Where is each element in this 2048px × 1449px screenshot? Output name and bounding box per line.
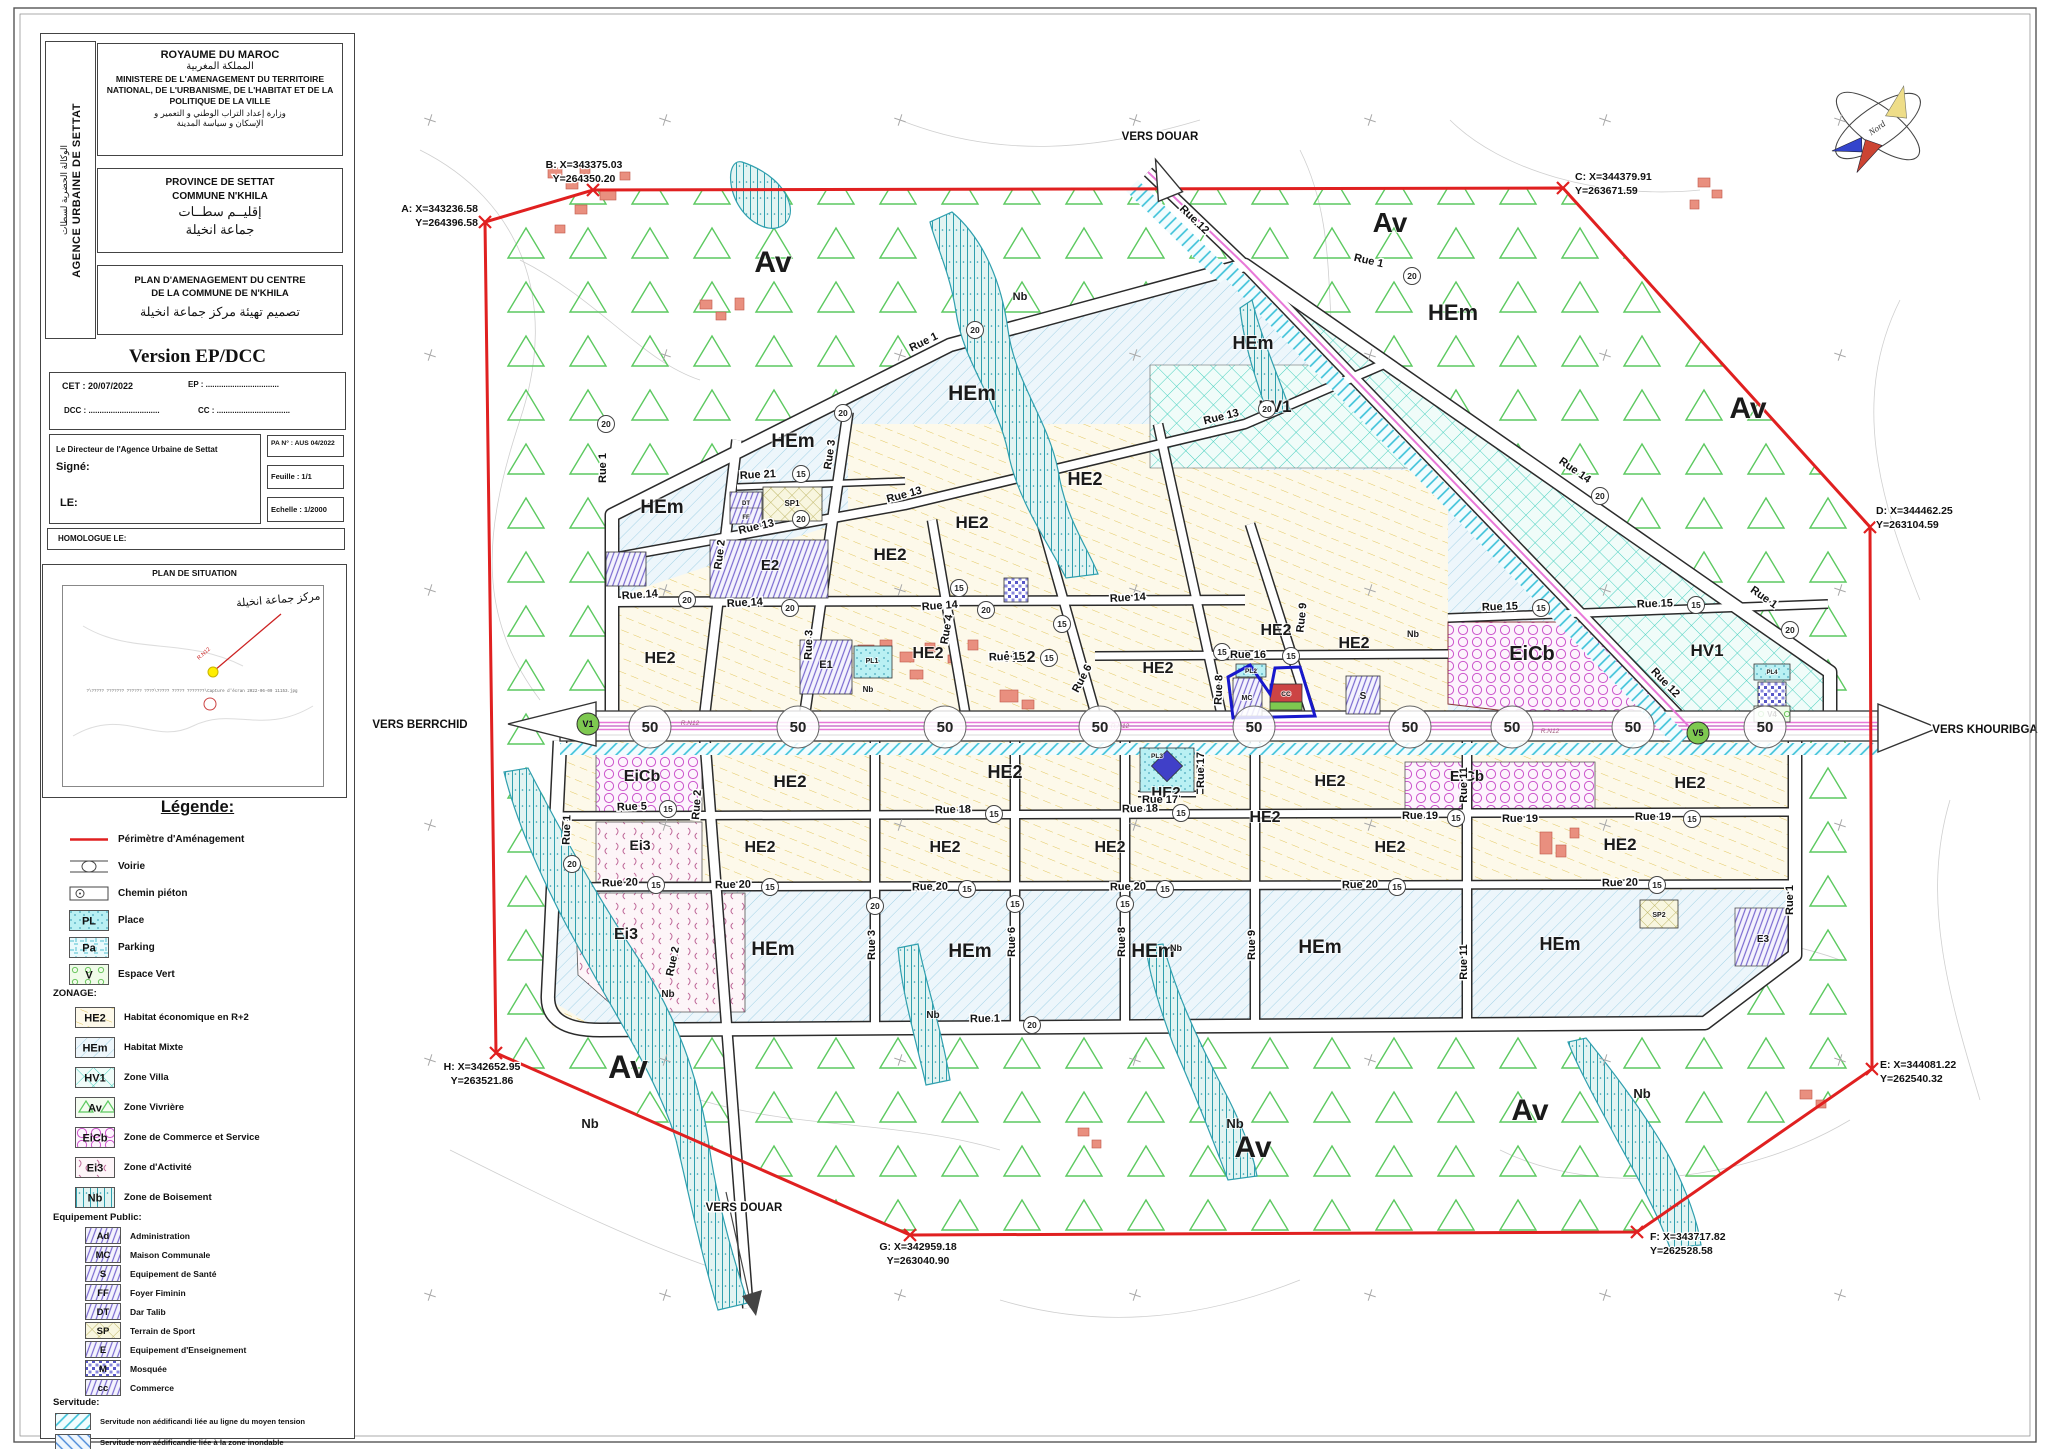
zone-label-hem: HEm bbox=[1539, 934, 1580, 954]
legend-item-E[interactable]: EEquipement d'Enseignement bbox=[53, 1340, 349, 1359]
svg-text:50: 50 bbox=[1757, 719, 1774, 736]
pa-number-box: PA N° : AUS 04/2022 bbox=[267, 435, 344, 457]
svg-text:20: 20 bbox=[1027, 1020, 1037, 1030]
street-label: Rue 15 bbox=[989, 650, 1025, 663]
legend-label: Equipement d'Enseignement bbox=[130, 1345, 246, 1355]
direction-label: VERS DOUAR bbox=[1122, 131, 1199, 143]
corner-coords-G: G: X=342959.18 bbox=[879, 1241, 957, 1253]
svg-text:DT: DT bbox=[97, 1307, 110, 1318]
corner-coords-B: Y=264350.20 bbox=[553, 173, 616, 185]
corner-coords-E: Y=262540.32 bbox=[1880, 1073, 1943, 1085]
zone-label-ff: FF bbox=[742, 515, 750, 521]
servitude-band-road bbox=[560, 743, 1878, 755]
zone-label-he2: HE2 bbox=[1249, 809, 1280, 826]
zone-label-he2: HE2 bbox=[1603, 835, 1636, 854]
legend-item-HV1[interactable]: HV1Zone Villa bbox=[53, 1062, 349, 1092]
svg-text:HEm: HEm bbox=[82, 1042, 107, 1054]
legend-swatch-equip: S bbox=[85, 1265, 121, 1282]
ministry-title: MINISTERE DE L'AMENAGEMENT DU TERRITOIRE… bbox=[98, 72, 342, 108]
legend-item-Ei3[interactable]: Ei3Zone d'Activité bbox=[53, 1152, 349, 1182]
street-label: Rue 19 bbox=[1502, 813, 1538, 825]
zone-label-pl4: PL4 bbox=[1766, 670, 1778, 676]
zone-label-nb: Nb bbox=[926, 1010, 939, 1021]
zone-label-dt: DT bbox=[742, 501, 750, 507]
province-title: PROVINCE DE SETTAT bbox=[98, 177, 342, 188]
legend-swatch-equip: Ad bbox=[85, 1227, 121, 1244]
zone-label-pl3: PL3 bbox=[1151, 753, 1163, 760]
svg-text:50: 50 bbox=[642, 719, 659, 736]
legend-item-Nb[interactable]: NbZone de Boisement bbox=[53, 1182, 349, 1212]
legend-item-FF[interactable]: FFFoyer Fiminin bbox=[53, 1283, 349, 1302]
svg-text:15: 15 bbox=[765, 882, 775, 892]
legend-item-Av[interactable]: AvZone Vivrière bbox=[53, 1092, 349, 1122]
zone-label-hem: HEm bbox=[1298, 937, 1341, 958]
legend-label: Servitude non aédificandie liée à la zon… bbox=[100, 1438, 284, 1447]
street-label: Rue 17 bbox=[1195, 752, 1207, 788]
legend-section-header: Equipement Public: bbox=[53, 1212, 349, 1226]
zone-label-he2: HE2 bbox=[912, 645, 943, 662]
svg-text:20: 20 bbox=[1407, 271, 1417, 281]
street-label: Rue 20 bbox=[602, 876, 638, 889]
zone-label-e3: E3 bbox=[1757, 934, 1770, 945]
svg-text:15: 15 bbox=[1652, 880, 1662, 890]
legend-swatch-he2: HE2 bbox=[75, 1007, 115, 1028]
svg-text:S: S bbox=[100, 1269, 106, 1280]
ministry-title-arabic-2: الإسكان و سياسة المدينة bbox=[98, 118, 342, 129]
legend-item-V[interactable]: VEspace Vert bbox=[53, 961, 349, 988]
legend-label: Foyer Fiminin bbox=[130, 1288, 186, 1298]
legend-item-servin[interactable]: Servitude non aédificandie liée à la zon… bbox=[53, 1432, 349, 1449]
legend-swatch-equip: E bbox=[85, 1341, 121, 1358]
corner-coords-F: F: X=343717.82 bbox=[1650, 1231, 1726, 1243]
legend-item-EiCb[interactable]: EiCbZone de Commerce et Service bbox=[53, 1122, 349, 1152]
legend-label: Périmètre d'Aménagement bbox=[118, 834, 244, 845]
zone-label-nb: Nb bbox=[581, 1116, 598, 1131]
svg-text:20: 20 bbox=[970, 325, 980, 335]
legend-swatch-pa: Pa bbox=[69, 937, 109, 958]
legend-item-SP[interactable]: SPTerrain de Sport bbox=[53, 1321, 349, 1340]
zone-label-av: Av bbox=[1234, 1131, 1272, 1164]
scale-box: Echelle : 1/2000 bbox=[267, 497, 344, 522]
zone-label-hem: HEm bbox=[1131, 941, 1174, 962]
street-label: Rue 14 bbox=[727, 596, 765, 610]
svg-text:50: 50 bbox=[790, 719, 807, 736]
direction-label: VERS KHOURIBGA bbox=[1932, 724, 2037, 736]
zone-label-av: Av bbox=[754, 246, 792, 279]
street-label: Rue 8 bbox=[1212, 675, 1225, 705]
zone-label-ei3: Ei3 bbox=[614, 926, 638, 943]
situation-plan-box: PLAN DE SITUATION مركز جماعة انخيلة R.N1… bbox=[42, 564, 347, 798]
svg-text:15: 15 bbox=[663, 804, 673, 814]
legend-label: Parking bbox=[118, 942, 155, 953]
svg-text:50: 50 bbox=[1402, 719, 1419, 736]
legend-label: Mosquée bbox=[130, 1364, 167, 1374]
agency-strip: الوكالة الحضرية لسطات AGENCE URBAINE DE … bbox=[45, 41, 96, 339]
svg-text:15: 15 bbox=[1392, 882, 1402, 892]
corner-coords-A: A: X=343236.58 bbox=[401, 203, 478, 215]
legend-swatch-ei3: Ei3 bbox=[75, 1157, 115, 1178]
zone-label-nb: Nb bbox=[1013, 291, 1028, 303]
street-label: Rue 1 bbox=[560, 815, 573, 845]
legend-label: Zone Villa bbox=[124, 1072, 169, 1083]
street-label: Rue 1 bbox=[597, 453, 609, 483]
zone-label-hem: HEm bbox=[751, 939, 794, 960]
street-label: Rue 1 bbox=[1784, 885, 1796, 915]
legend-item-Pa[interactable]: PaParking bbox=[53, 934, 349, 961]
svg-text:15: 15 bbox=[1120, 899, 1130, 909]
svg-text:20: 20 bbox=[870, 901, 880, 911]
corner-coords-H: H: X=342652.95 bbox=[444, 1061, 521, 1073]
svg-text:EiCb: EiCb bbox=[82, 1132, 107, 1144]
legend-swatch-m: M bbox=[85, 1360, 121, 1377]
legend-item-HE2[interactable]: HE2Habitat économique en R+2 bbox=[53, 1002, 349, 1032]
street-label: Rue 16 bbox=[1230, 649, 1266, 661]
legend-item-servmt[interactable]: Servitude non aédificandi liée au ligne … bbox=[53, 1411, 349, 1432]
corner-coords-B: B: X=343375.03 bbox=[546, 159, 623, 171]
legend-swatch-equip: FF bbox=[85, 1284, 121, 1301]
plan-title-box: PLAN D'AMENAGEMENT DU CENTRE DE LA COMMU… bbox=[97, 265, 343, 335]
svg-text:PL: PL bbox=[82, 916, 96, 928]
zone-label-hem: HEm bbox=[771, 431, 814, 452]
legend-label: Terrain de Sport bbox=[130, 1326, 195, 1336]
street-label: Rue 14 bbox=[1110, 591, 1148, 605]
svg-text:20: 20 bbox=[567, 859, 577, 869]
zone-label-sp1: SP1 bbox=[784, 499, 800, 508]
situation-center-dot bbox=[208, 667, 218, 677]
street-label: Rue 15 bbox=[1482, 600, 1518, 613]
svg-text:50: 50 bbox=[1246, 719, 1263, 736]
street-label: Rue 3 bbox=[802, 630, 815, 660]
svg-text:15: 15 bbox=[954, 583, 964, 593]
legend-label: Dar Talib bbox=[130, 1307, 166, 1317]
zone-label-he2: HE2 bbox=[1142, 660, 1173, 677]
svg-text:50: 50 bbox=[1625, 719, 1642, 736]
zone-label-hem: HEm bbox=[948, 941, 991, 962]
svg-text:E: E bbox=[100, 1345, 106, 1356]
zone-label-e1: E1 bbox=[819, 659, 832, 671]
legend-swatch-equip: MC bbox=[85, 1246, 121, 1263]
legend-item-MC[interactable]: MCMaison Communale bbox=[53, 1245, 349, 1264]
legend-label: Equipement de Santé bbox=[130, 1269, 216, 1279]
svg-text:15: 15 bbox=[1010, 899, 1020, 909]
svg-text:Nb: Nb bbox=[88, 1192, 103, 1204]
street-label: Rue 19 bbox=[1402, 810, 1438, 822]
director-box: Le Directeur de l'Agence Urbaine de Sett… bbox=[49, 434, 261, 524]
situation-map[interactable]: مركز جماعة انخيلة R.N12 ?\????? ??????? … bbox=[62, 585, 324, 787]
svg-text:15: 15 bbox=[1217, 647, 1227, 657]
svg-text:FF: FF bbox=[97, 1288, 109, 1299]
street-label: Rue 9 bbox=[1246, 930, 1258, 960]
plan-sheet: Nord AvAvAvAvAvAvHEmHEmHEmHEmHEmHEmHEmHE… bbox=[0, 0, 2048, 1449]
zone-label-hem: HEm bbox=[948, 382, 996, 405]
legend-swatch-equip: cc bbox=[85, 1379, 121, 1396]
legend-label: Habitat économique en R+2 bbox=[124, 1012, 249, 1023]
zone-label-av: Av bbox=[608, 1049, 648, 1085]
legend-label: Zone Vivrière bbox=[124, 1102, 184, 1113]
svg-text:15: 15 bbox=[962, 884, 972, 894]
corner-coords-H: Y=263521.86 bbox=[451, 1075, 514, 1087]
svg-text:20: 20 bbox=[682, 595, 692, 605]
cet-date: CET : 20/07/2022 bbox=[62, 381, 133, 391]
street-label: Rue 11 bbox=[1458, 767, 1470, 802]
zone-label-hv1: HV1 bbox=[1690, 641, 1723, 660]
legend-label: Espace Vert bbox=[118, 969, 175, 980]
legend-item-HEm[interactable]: HEmHabitat Mixte bbox=[53, 1032, 349, 1062]
corner-coords-F: Y=262528.58 bbox=[1650, 1245, 1713, 1257]
zone-label-hem: HEm bbox=[640, 497, 683, 518]
zone-label-he2: HE2 bbox=[955, 513, 988, 532]
legend-list: Périmètre d'AménagementVoirieChemin piét… bbox=[53, 826, 349, 1449]
legend-item-S[interactable]: SEquipement de Santé bbox=[53, 1264, 349, 1283]
zone-label-e2: E2 bbox=[761, 557, 779, 574]
legend-swatch-equip: DT bbox=[85, 1303, 121, 1320]
province-box: PROVINCE DE SETTAT COMMUNE N'KHILA إقليـ… bbox=[97, 168, 343, 253]
svg-text:20: 20 bbox=[1595, 491, 1605, 501]
zone-label-nb: Nb bbox=[1170, 943, 1182, 953]
street-label: Rue 11 bbox=[1458, 944, 1470, 979]
svg-text:HV1: HV1 bbox=[84, 1072, 105, 1084]
agency-name-arabic: الوكالة الحضرية لسطات bbox=[59, 145, 69, 235]
svg-text:HE2: HE2 bbox=[84, 1012, 105, 1024]
date-label: LE: bbox=[60, 497, 78, 509]
zone-label-nb: Nb bbox=[863, 685, 874, 694]
zone-label-pl2: PL2 bbox=[1245, 668, 1257, 675]
zone-label-he2: HE2 bbox=[1374, 839, 1405, 856]
legend-swatch-hv1: HV1 bbox=[75, 1067, 115, 1088]
street-label: Rue 19 bbox=[1635, 811, 1671, 823]
street-label: Rue 8 bbox=[1116, 927, 1128, 957]
legend-item-Ad[interactable]: AdAdministration bbox=[53, 1226, 349, 1245]
corner-coords-A: Y=264396.58 bbox=[415, 217, 478, 229]
street-label: Rue 20 bbox=[715, 879, 751, 892]
zone-label-nb: Nb bbox=[1633, 1086, 1650, 1101]
plan-title-line1: PLAN D'AMENAGEMENT DU CENTRE bbox=[98, 275, 342, 286]
svg-text:15: 15 bbox=[1057, 619, 1067, 629]
zone-label-ei3: Ei3 bbox=[629, 837, 650, 853]
homologation-box: HOMOLOGUE LE: bbox=[47, 528, 345, 550]
corner-coords-E: E: X=344081.22 bbox=[1880, 1059, 1956, 1071]
svg-text:M: M bbox=[99, 1364, 107, 1375]
legend-section-header: Servitude: bbox=[53, 1397, 349, 1411]
svg-text:20: 20 bbox=[1262, 404, 1272, 414]
street-label: R.N12 bbox=[681, 720, 700, 727]
sheet-number-box: Feuille : 1/1 bbox=[267, 465, 344, 489]
legend-item-M[interactable]: MMosquée bbox=[53, 1359, 349, 1378]
legend-swatch-av: Av bbox=[75, 1097, 115, 1118]
svg-text:Ei3: Ei3 bbox=[87, 1162, 104, 1174]
legend-swatch-servmt bbox=[55, 1413, 91, 1430]
zone-label-eicb: EiCb bbox=[624, 768, 661, 785]
svg-text:50: 50 bbox=[1504, 719, 1521, 736]
ep-field: EP : ................................. bbox=[188, 380, 279, 389]
direction-label: VERS DOUAR bbox=[706, 1202, 783, 1214]
ministry-title-arabic-1: وزارة إعداد التراب الوطني و التعمير و bbox=[98, 108, 342, 119]
street-label: Rue 20 bbox=[1110, 881, 1146, 894]
zone-label-av: Av bbox=[1511, 1094, 1549, 1127]
street-label: Rue 15 bbox=[1637, 597, 1673, 610]
zone-label-he2: HE2 bbox=[873, 545, 906, 564]
svg-text:15: 15 bbox=[1176, 808, 1186, 818]
zone-label-eicb: EiCb bbox=[1509, 643, 1555, 665]
svg-text:20: 20 bbox=[1785, 625, 1795, 635]
legend-swatch-perimetre bbox=[69, 829, 109, 850]
legend-label: Zone d'Activité bbox=[124, 1162, 192, 1173]
svg-text:15: 15 bbox=[651, 880, 661, 890]
zone-label-he2: HE2 bbox=[1674, 775, 1705, 792]
kingdom-title: ROYAUME DU MAROC bbox=[98, 49, 342, 61]
svg-text:15: 15 bbox=[1160, 884, 1170, 894]
legend-label: Commerce bbox=[130, 1383, 174, 1393]
street-label: Rue 2 bbox=[690, 789, 704, 820]
zone-label-hem: HEm bbox=[1428, 300, 1478, 325]
director-title: Le Directeur de l'Agence Urbaine de Sett… bbox=[56, 445, 218, 454]
corner-coords-D: D: X=344462.25 bbox=[1876, 505, 1953, 517]
svg-text:cc: cc bbox=[98, 1383, 109, 1394]
legend-label: Zone de Boisement bbox=[124, 1192, 212, 1203]
zone-label-hem: HEm bbox=[1232, 333, 1273, 353]
svg-text:Ad: Ad bbox=[97, 1231, 110, 1242]
svg-text:15: 15 bbox=[1536, 603, 1546, 613]
zone-label-nb: Nb bbox=[1226, 1116, 1243, 1131]
svg-text:50: 50 bbox=[937, 719, 954, 736]
cc-field: CC : ................................. bbox=[198, 406, 290, 415]
svg-text:20: 20 bbox=[796, 514, 806, 524]
street-label: Rue 18 bbox=[1122, 803, 1158, 816]
zone-label-he2: HE2 bbox=[644, 650, 675, 667]
zone-label-he2: HE2 bbox=[929, 839, 960, 856]
dcc-field: DCC : ................................ bbox=[64, 406, 160, 415]
kingdom-title-arabic: المملكة المغربية bbox=[98, 61, 342, 72]
kingdom-box: ROYAUME DU MAROC المملكة المغربية MINIST… bbox=[97, 43, 343, 156]
street-label: Rue 3 bbox=[866, 930, 878, 960]
street-label: Rue 21 bbox=[740, 468, 777, 482]
svg-text:50: 50 bbox=[1092, 719, 1109, 736]
zone-label-he2: HE2 bbox=[1094, 839, 1125, 856]
legend-item-cc[interactable]: ccCommerce bbox=[53, 1378, 349, 1397]
legend-label: Place bbox=[118, 915, 144, 926]
svg-text:15: 15 bbox=[1687, 814, 1697, 824]
zone-label-he2: HE2 bbox=[773, 772, 806, 791]
zone-label-he2: HE2 bbox=[1260, 622, 1291, 639]
zone-label-nb: Nb bbox=[661, 989, 674, 1000]
svg-text:V5: V5 bbox=[1692, 728, 1703, 738]
zone-label-he2: HE2 bbox=[1314, 773, 1345, 790]
zone-label-cc: CC bbox=[1281, 691, 1291, 698]
legend-label: Voirie bbox=[118, 861, 145, 872]
corner-coords-G: Y=263040.90 bbox=[887, 1255, 950, 1267]
signature-label: Signé: bbox=[56, 461, 90, 473]
legend-swatch-voirie bbox=[69, 856, 109, 877]
legend-item-voirie[interactable]: Voirie bbox=[53, 853, 349, 880]
street-label: Rue 18 bbox=[935, 804, 971, 817]
legend-swatch-sp: SP bbox=[85, 1322, 121, 1339]
legend-swatch-nb: Nb bbox=[75, 1187, 115, 1208]
plan-title-arabic: تصميم تهيئة مركز جماعة انخيلة bbox=[98, 304, 342, 319]
svg-text:15: 15 bbox=[796, 469, 806, 479]
street-label: R.N12 bbox=[1541, 728, 1560, 735]
legend-swatch-pl: PL bbox=[69, 910, 109, 931]
title-block-panel: الوكالة الحضرية لسطات AGENCE URBAINE DE … bbox=[40, 33, 355, 1439]
svg-text:15: 15 bbox=[1451, 813, 1461, 823]
street-label: Rue 20 bbox=[1342, 879, 1378, 892]
zone-label-he2: HE2 bbox=[1338, 635, 1369, 652]
svg-text:V1: V1 bbox=[582, 719, 593, 729]
legend-item-chemin[interactable]: Chemin piéton bbox=[53, 880, 349, 907]
street-label: Rue 5 bbox=[617, 800, 647, 813]
zone-label-he2: HE2 bbox=[987, 762, 1022, 782]
svg-text:20: 20 bbox=[981, 605, 991, 615]
legend-item-DT[interactable]: DTDar Talib bbox=[53, 1302, 349, 1321]
street-label: Rue 1 bbox=[970, 1013, 1000, 1026]
svg-text:20: 20 bbox=[838, 408, 848, 418]
commune-title: COMMUNE N'KHILA bbox=[98, 191, 342, 202]
zone-label-s: S bbox=[1360, 691, 1367, 702]
legend-swatch-chemin bbox=[69, 883, 109, 904]
legend-item-perimetre[interactable]: Périmètre d'Aménagement bbox=[53, 826, 349, 853]
svg-text:15: 15 bbox=[1286, 651, 1296, 661]
zone-label-nb: Nb bbox=[1407, 629, 1419, 639]
zone-label-he2: HE2 bbox=[1067, 469, 1102, 489]
dates-box: CET : 20/07/2022 EP : ..................… bbox=[49, 372, 346, 430]
street-label: Rue 20 bbox=[912, 881, 948, 894]
svg-text:15: 15 bbox=[1044, 653, 1054, 663]
legend-label: Habitat Mixte bbox=[124, 1042, 183, 1053]
plan-title-line2: DE LA COMMUNE DE N'KHILA bbox=[98, 288, 342, 299]
legend-swatch-servin bbox=[55, 1434, 91, 1449]
legend-item-PL[interactable]: PLPlace bbox=[53, 907, 349, 934]
legend-label: Servitude non aédificandi liée au ligne … bbox=[100, 1417, 305, 1426]
street-label: Rue 20 bbox=[1602, 877, 1638, 890]
svg-text:Av: Av bbox=[88, 1102, 103, 1114]
zone-label-av: Av bbox=[1729, 392, 1767, 425]
zone-label-sp2: SP2 bbox=[1652, 912, 1665, 919]
legend-label: Administration bbox=[130, 1231, 190, 1241]
svg-text:SP: SP bbox=[97, 1326, 110, 1337]
version-title: Version EP/DCC bbox=[41, 346, 354, 368]
svg-text:15: 15 bbox=[1691, 600, 1701, 610]
legend-label: Zone de Commerce et Service bbox=[124, 1132, 260, 1143]
svg-text:V: V bbox=[85, 970, 93, 982]
legend-swatch-eicb: EiCb bbox=[75, 1127, 115, 1148]
legend-swatch-v: V bbox=[69, 964, 109, 985]
legend-label: Chemin piéton bbox=[118, 888, 187, 899]
zone-label-pl1: PL1 bbox=[866, 658, 879, 665]
commune-title-arabic: جماعة انخيلة bbox=[98, 222, 342, 238]
svg-text:Pa: Pa bbox=[82, 943, 96, 955]
legend-title: Légende: bbox=[41, 798, 354, 817]
direction-label: VERS BERRCHID bbox=[372, 719, 467, 731]
zone-label-he2: HE2 bbox=[744, 839, 775, 856]
province-title-arabic: إقليــم سطــات bbox=[98, 204, 342, 220]
agency-name: AGENCE URBAINE DE SETTAT bbox=[71, 103, 83, 278]
legend-swatch-hem: HEm bbox=[75, 1037, 115, 1058]
corner-coords-C: Y=263671.59 bbox=[1575, 185, 1638, 197]
svg-text:20: 20 bbox=[785, 603, 795, 613]
zone-label-av: Av bbox=[1373, 207, 1408, 238]
corner-coords-D: Y=263104.59 bbox=[1876, 519, 1939, 531]
zone-label-mc: MC bbox=[1242, 695, 1253, 702]
svg-text:20: 20 bbox=[601, 419, 611, 429]
legend-label: Maison Communale bbox=[130, 1250, 210, 1260]
situation-file-path: ?\????? ??????? ?????? ????\????? ????? … bbox=[86, 689, 298, 694]
corner-coords-C: C: X=344379.91 bbox=[1575, 171, 1652, 183]
street-label: Rue 6 bbox=[1006, 927, 1018, 957]
situation-circle-marker bbox=[204, 698, 216, 710]
svg-text:MC: MC bbox=[96, 1250, 111, 1261]
situation-pointer-line bbox=[215, 614, 281, 670]
situation-title: PLAN DE SITUATION bbox=[43, 568, 346, 578]
legend-section-header: ZONAGE: bbox=[53, 988, 349, 1002]
